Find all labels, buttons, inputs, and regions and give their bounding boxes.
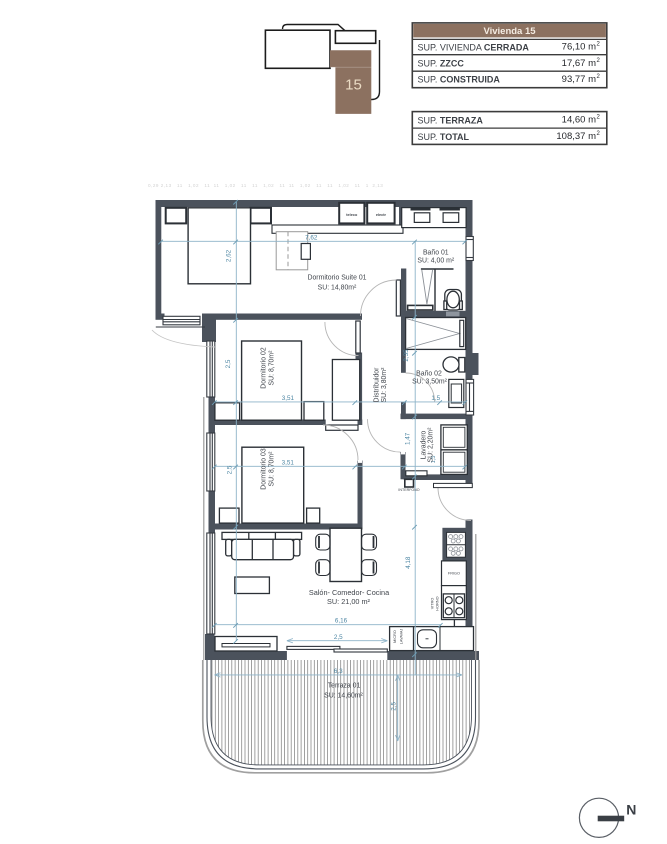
svg-text:Vivienda 15: Vivienda 15 (483, 26, 536, 37)
svg-text:1,47: 1,47 (404, 432, 411, 445)
svg-text:SU: 8,70m²: SU: 8,70m² (269, 451, 276, 487)
svg-text:3,51: 3,51 (282, 459, 295, 466)
svg-text:93,77 m: 93,77 m (562, 74, 596, 85)
svg-text:SUP. CONSTRUIDA: SUP. CONSTRUIDA (418, 75, 501, 85)
svg-text:2,5: 2,5 (227, 465, 234, 474)
svg-text:Baño 01: Baño 01 (423, 250, 449, 257)
svg-text:SU: 3,80m²: SU: 3,80m² (381, 367, 388, 403)
svg-text:SU: 8,70m²: SU: 8,70m² (269, 350, 276, 386)
svg-text:SUP. TERRAZA: SUP. TERRAZA (418, 115, 484, 125)
svg-text:3,51: 3,51 (282, 395, 295, 402)
svg-text:15: 15 (345, 77, 362, 94)
svg-text:SU: 14,80m²: SU: 14,80m² (318, 285, 357, 292)
svg-text:FRIGO: FRIGO (448, 572, 460, 576)
svg-text:2,5: 2,5 (334, 634, 343, 641)
svg-text:electr: electr (376, 213, 387, 217)
svg-text:teleco: teleco (346, 213, 358, 217)
svg-text:MICRO: MICRO (393, 630, 397, 643)
svg-text:LAVAVAJ: LAVAVAJ (400, 629, 404, 645)
svg-text:N: N (626, 802, 636, 818)
svg-text:76,10 m: 76,10 m (562, 42, 596, 53)
svg-text:SUP. VIVIENDA CERRADA: SUP. VIVIENDA CERRADA (418, 42, 530, 52)
svg-text:2,62: 2,62 (225, 249, 232, 262)
svg-text:4,18: 4,18 (405, 556, 412, 569)
svg-text:HORNO: HORNO (435, 596, 439, 610)
svg-text:Dormitorio Suite 01: Dormitorio Suite 01 (308, 275, 367, 282)
svg-text:14,60 m: 14,60 m (562, 115, 596, 126)
svg-text:0,29 2,13 11 1,02 11 11: 0,29 2,13 11 1,02 11 11 1,02 11 11 1,02 … (148, 183, 383, 188)
svg-text:SU: 2,20m²: SU: 2,20m² (428, 427, 435, 463)
svg-text:17,67 m: 17,67 m (562, 58, 596, 69)
svg-text:Lavadero: Lavadero (421, 430, 428, 459)
svg-text:Baño 02: Baño 02 (416, 371, 442, 378)
svg-text:VITRO: VITRO (430, 598, 434, 610)
svg-text:SUP. TOTAL: SUP. TOTAL (418, 132, 470, 142)
svg-text:7,62: 7,62 (305, 234, 318, 241)
svg-text:2,35: 2,35 (403, 349, 410, 362)
svg-text:Dormitorio 02: Dormitorio 02 (261, 347, 268, 389)
svg-text:SUP. ZZCC: SUP. ZZCC (418, 59, 465, 69)
svg-text:2,5: 2,5 (391, 702, 398, 711)
svg-text:Distribuidor: Distribuidor (374, 367, 381, 403)
svg-text:Salón- Comedor- Cocina: Salón- Comedor- Cocina (309, 588, 390, 597)
svg-text:6,3: 6,3 (334, 668, 343, 675)
svg-text:1,5: 1,5 (431, 395, 440, 402)
svg-text:INTERFONO: INTERFONO (398, 488, 419, 492)
svg-text:SU: 4,00 m²: SU: 4,00 m² (417, 258, 454, 265)
svg-text:108,37 m: 108,37 m (556, 131, 596, 142)
svg-text:2,5: 2,5 (225, 359, 232, 368)
svg-text:SU: 21,00 m²: SU: 21,00 m² (327, 597, 371, 606)
svg-text:Terraza 01: Terraza 01 (328, 682, 361, 689)
svg-text:6,16: 6,16 (335, 617, 348, 624)
svg-text:Dormitorio 03: Dormitorio 03 (261, 448, 268, 490)
svg-text:SU: 14,60m²: SU: 14,60m² (324, 692, 363, 699)
svg-text:SU: 3,50m²: SU: 3,50m² (412, 379, 448, 386)
